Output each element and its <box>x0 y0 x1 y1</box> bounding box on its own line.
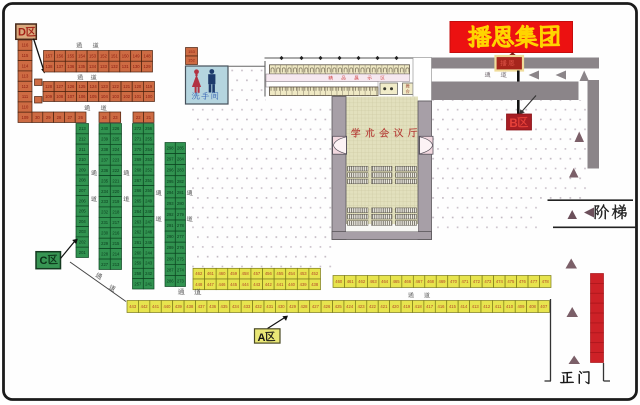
svg-text:156: 156 <box>56 53 64 58</box>
svg-text:448: 448 <box>195 282 203 287</box>
svg-text:416: 416 <box>438 304 446 309</box>
svg-text:413: 413 <box>472 304 480 309</box>
svg-text:439: 439 <box>175 304 183 309</box>
svg-text:275: 275 <box>177 256 185 261</box>
svg-text:105: 105 <box>90 94 98 99</box>
svg-text:447: 447 <box>207 282 215 287</box>
svg-text:418: 418 <box>415 304 423 309</box>
svg-text:229: 229 <box>101 241 109 246</box>
svg-text:408: 408 <box>529 304 537 309</box>
svg-text:270: 270 <box>134 147 142 152</box>
svg-text:443: 443 <box>129 304 137 309</box>
svg-text:109: 109 <box>22 115 30 120</box>
svg-text:274: 274 <box>177 267 185 272</box>
svg-text:273: 273 <box>177 278 185 283</box>
svg-text:262: 262 <box>134 230 142 235</box>
svg-text:231: 231 <box>101 220 109 225</box>
svg-text:295: 295 <box>167 179 175 184</box>
svg-text:238: 238 <box>101 147 109 152</box>
svg-text:A: A <box>258 332 266 344</box>
svg-text:433: 433 <box>243 304 251 309</box>
svg-text:471: 471 <box>461 279 469 284</box>
svg-text:228: 228 <box>101 251 109 256</box>
svg-text:152: 152 <box>100 53 108 58</box>
svg-text:443: 443 <box>253 282 261 287</box>
svg-text:121: 121 <box>123 84 131 89</box>
svg-text:202: 202 <box>79 240 87 245</box>
svg-text:106: 106 <box>79 94 87 99</box>
svg-text:438: 438 <box>186 304 194 309</box>
svg-text:276: 276 <box>177 245 185 250</box>
svg-text:114: 114 <box>22 63 29 68</box>
svg-text:282: 282 <box>177 179 185 184</box>
svg-text:213: 213 <box>112 262 120 267</box>
svg-text:462: 462 <box>358 279 366 284</box>
svg-text:257: 257 <box>134 281 142 286</box>
svg-text:298: 298 <box>167 146 175 151</box>
svg-text:441: 441 <box>276 282 284 287</box>
svg-text:407: 407 <box>540 304 548 309</box>
svg-text:235: 235 <box>101 178 109 183</box>
svg-text:462: 462 <box>195 271 203 276</box>
svg-text:466: 466 <box>404 279 412 284</box>
svg-text:426: 426 <box>323 304 331 309</box>
svg-text:115: 115 <box>22 53 29 58</box>
svg-text:209: 209 <box>79 167 87 172</box>
svg-text:133: 133 <box>100 64 108 69</box>
svg-text:287: 287 <box>167 267 175 272</box>
svg-text:473: 473 <box>484 279 492 284</box>
svg-text:263: 263 <box>134 219 142 224</box>
svg-text:154: 154 <box>78 53 86 58</box>
svg-text:155: 155 <box>67 53 75 58</box>
svg-text:233: 233 <box>101 199 109 204</box>
svg-text:437: 437 <box>198 304 206 309</box>
svg-text:278: 278 <box>177 223 185 228</box>
svg-text:293: 293 <box>167 201 175 206</box>
svg-text:288: 288 <box>167 256 175 261</box>
svg-text:148: 148 <box>144 53 152 58</box>
svg-text:247: 247 <box>145 219 153 224</box>
svg-text:412: 412 <box>483 304 491 309</box>
svg-text:261: 261 <box>134 240 142 245</box>
svg-text:269: 269 <box>134 157 142 162</box>
svg-text:128: 128 <box>45 84 53 89</box>
svg-text:440: 440 <box>288 282 296 287</box>
svg-text:422: 422 <box>369 304 377 309</box>
svg-text:113: 113 <box>22 74 29 79</box>
svg-text:250: 250 <box>145 188 153 193</box>
svg-text:430: 430 <box>278 304 286 309</box>
svg-text:134: 134 <box>89 64 97 69</box>
svg-text:445: 445 <box>230 282 238 287</box>
svg-text:23: 23 <box>113 115 118 120</box>
svg-text:212: 212 <box>79 136 87 141</box>
svg-text:431: 431 <box>266 304 274 309</box>
svg-text:428: 428 <box>300 304 308 309</box>
svg-text:280: 280 <box>177 201 185 206</box>
svg-text:436: 436 <box>209 304 217 309</box>
svg-text:465: 465 <box>393 279 401 284</box>
svg-text:251: 251 <box>145 178 153 183</box>
svg-text:210: 210 <box>79 157 87 162</box>
svg-text:24: 24 <box>102 115 107 120</box>
svg-text:425: 425 <box>335 304 343 309</box>
svg-text:419: 419 <box>403 304 411 309</box>
svg-text:460: 460 <box>218 271 226 276</box>
svg-text:245: 245 <box>145 240 153 245</box>
svg-text:285: 285 <box>177 146 185 151</box>
svg-text:221: 221 <box>112 178 120 183</box>
svg-text:467: 467 <box>416 279 424 284</box>
svg-text:452: 452 <box>311 271 319 276</box>
svg-text:127: 127 <box>56 84 64 89</box>
svg-text:22: 22 <box>136 115 141 120</box>
svg-text:204: 204 <box>79 219 87 224</box>
svg-text:239: 239 <box>101 137 109 142</box>
svg-text:271: 271 <box>134 137 142 142</box>
svg-text:283: 283 <box>177 168 185 173</box>
svg-text:216: 216 <box>112 231 120 236</box>
svg-text:441: 441 <box>152 304 160 309</box>
svg-text:272: 272 <box>134 126 142 131</box>
svg-text:227: 227 <box>101 262 109 267</box>
svg-text:26: 26 <box>78 115 83 120</box>
svg-text:427: 427 <box>312 304 320 309</box>
svg-text:103: 103 <box>112 94 120 99</box>
svg-text:258: 258 <box>134 271 142 276</box>
svg-text:477: 477 <box>530 279 538 284</box>
svg-text:136: 136 <box>67 64 75 69</box>
svg-text:292: 292 <box>167 212 175 217</box>
svg-text:111: 111 <box>22 94 29 99</box>
svg-text:120: 120 <box>134 84 142 89</box>
svg-text:232: 232 <box>101 210 109 215</box>
svg-text:294: 294 <box>167 190 175 195</box>
svg-text:211: 211 <box>79 147 86 152</box>
svg-text:151: 151 <box>111 53 119 58</box>
svg-text:434: 434 <box>232 304 240 309</box>
svg-text:290: 290 <box>167 234 175 239</box>
svg-text:424: 424 <box>346 304 354 309</box>
svg-text:442: 442 <box>265 282 273 287</box>
svg-text:135: 135 <box>78 64 86 69</box>
svg-text:446: 446 <box>218 282 226 287</box>
svg-text:109: 109 <box>45 94 53 99</box>
svg-text:476: 476 <box>519 279 527 284</box>
svg-text:208: 208 <box>79 178 87 183</box>
svg-text:234: 234 <box>101 189 109 194</box>
svg-text:116: 116 <box>22 43 29 48</box>
svg-text:444: 444 <box>242 282 250 287</box>
svg-text:458: 458 <box>242 271 250 276</box>
svg-text:291: 291 <box>167 223 175 228</box>
svg-text:410: 410 <box>506 304 514 309</box>
svg-text:478: 478 <box>542 279 550 284</box>
svg-text:249: 249 <box>145 199 153 204</box>
svg-text:438: 438 <box>311 282 319 287</box>
svg-text:264: 264 <box>134 209 142 214</box>
svg-text:472: 472 <box>473 279 481 284</box>
svg-text:254: 254 <box>145 147 153 152</box>
svg-text:152: 152 <box>188 58 195 63</box>
svg-text:297: 297 <box>167 157 175 162</box>
svg-text:468: 468 <box>427 279 435 284</box>
svg-text:415: 415 <box>449 304 457 309</box>
svg-text:463: 463 <box>370 279 378 284</box>
svg-text:266: 266 <box>134 188 142 193</box>
svg-text:260: 260 <box>134 250 142 255</box>
svg-text:461: 461 <box>347 279 355 284</box>
svg-text:286: 286 <box>167 278 175 283</box>
svg-text:289: 289 <box>167 245 175 250</box>
svg-text:206: 206 <box>79 198 87 203</box>
svg-text:439: 439 <box>300 282 308 287</box>
svg-text:240: 240 <box>101 126 109 131</box>
svg-text:205: 205 <box>79 209 87 214</box>
svg-text:125: 125 <box>79 84 87 89</box>
svg-text:126: 126 <box>67 84 75 89</box>
svg-text:464: 464 <box>381 279 389 284</box>
svg-text:429: 429 <box>289 304 297 309</box>
svg-text:442: 442 <box>141 304 149 309</box>
svg-text:207: 207 <box>79 188 87 193</box>
svg-text:137: 137 <box>56 64 64 69</box>
svg-text:213: 213 <box>79 126 87 131</box>
svg-text:256: 256 <box>145 126 153 131</box>
svg-text:223: 223 <box>112 158 120 163</box>
svg-text:267: 267 <box>134 178 142 183</box>
svg-text:255: 255 <box>145 137 153 142</box>
svg-text:432: 432 <box>255 304 263 309</box>
svg-text:131: 131 <box>122 64 130 69</box>
svg-text:102: 102 <box>123 94 131 99</box>
svg-text:279: 279 <box>177 212 185 217</box>
svg-text:100: 100 <box>145 94 153 99</box>
svg-text:453: 453 <box>300 271 308 276</box>
svg-text:124: 124 <box>90 84 98 89</box>
svg-text:107: 107 <box>67 94 75 99</box>
svg-text:215: 215 <box>112 241 120 246</box>
svg-text:244: 244 <box>145 250 153 255</box>
svg-text:474: 474 <box>496 279 504 284</box>
svg-text:222: 222 <box>112 168 120 173</box>
svg-text:248: 248 <box>145 209 153 214</box>
svg-text:461: 461 <box>207 271 215 276</box>
svg-text:132: 132 <box>111 64 119 69</box>
svg-text:D: D <box>18 27 26 39</box>
svg-text:421: 421 <box>380 304 388 309</box>
svg-text:226: 226 <box>112 126 120 131</box>
svg-text:218: 218 <box>112 210 120 215</box>
svg-text:150: 150 <box>122 53 130 58</box>
svg-text:29: 29 <box>46 115 51 120</box>
svg-text:457: 457 <box>253 271 261 276</box>
svg-text:252: 252 <box>145 168 153 173</box>
svg-text:455: 455 <box>276 271 284 276</box>
svg-text:296: 296 <box>167 168 175 173</box>
svg-text:454: 454 <box>288 271 296 276</box>
svg-text:268: 268 <box>134 168 142 173</box>
svg-text:411: 411 <box>495 304 502 309</box>
svg-text:224: 224 <box>112 147 120 152</box>
svg-text:C: C <box>40 255 48 267</box>
svg-text:110: 110 <box>22 105 29 110</box>
svg-text:417: 417 <box>426 304 434 309</box>
svg-text:149: 149 <box>133 53 141 58</box>
svg-text:420: 420 <box>392 304 400 309</box>
svg-text:459: 459 <box>230 271 238 276</box>
svg-text:130: 130 <box>133 64 141 69</box>
svg-text:219: 219 <box>112 199 120 204</box>
svg-text:237: 237 <box>101 158 109 163</box>
svg-text:475: 475 <box>507 279 515 284</box>
svg-text:440: 440 <box>163 304 171 309</box>
svg-text:123: 123 <box>101 84 109 89</box>
svg-text:28: 28 <box>57 115 62 120</box>
svg-text:108: 108 <box>56 94 64 99</box>
svg-text:456: 456 <box>265 271 273 276</box>
svg-text:153: 153 <box>89 53 97 58</box>
svg-text:129: 129 <box>144 64 152 69</box>
svg-text:138: 138 <box>45 64 53 69</box>
svg-text:214: 214 <box>112 251 120 256</box>
svg-text:30: 30 <box>35 115 40 120</box>
svg-text:243: 243 <box>145 261 153 266</box>
svg-text:265: 265 <box>134 199 142 204</box>
svg-text:119: 119 <box>146 84 153 89</box>
svg-text:435: 435 <box>221 304 229 309</box>
svg-text:236: 236 <box>101 168 109 173</box>
svg-text:284: 284 <box>177 157 185 162</box>
svg-text:281: 281 <box>177 190 185 195</box>
svg-text:225: 225 <box>112 137 120 142</box>
svg-text:409: 409 <box>517 304 525 309</box>
svg-text:157: 157 <box>45 53 53 58</box>
svg-text:230: 230 <box>101 231 109 236</box>
svg-text:423: 423 <box>358 304 366 309</box>
svg-text:27: 27 <box>67 115 72 120</box>
svg-text:259: 259 <box>134 261 142 266</box>
svg-text:104: 104 <box>101 94 109 99</box>
svg-text:B: B <box>509 118 517 130</box>
svg-text:21: 21 <box>146 115 151 120</box>
svg-text:246: 246 <box>145 230 153 235</box>
svg-text:277: 277 <box>177 234 185 239</box>
svg-text:241: 241 <box>145 281 153 286</box>
svg-text:253: 253 <box>145 157 153 162</box>
svg-text:469: 469 <box>439 279 447 284</box>
svg-text:101: 101 <box>134 94 142 99</box>
svg-text:220: 220 <box>112 189 120 194</box>
svg-text:217: 217 <box>112 220 120 225</box>
svg-text:460: 460 <box>335 279 343 284</box>
svg-text:203: 203 <box>79 229 87 234</box>
svg-text:122: 122 <box>112 84 120 89</box>
svg-text:414: 414 <box>460 304 468 309</box>
svg-text:153: 153 <box>188 49 195 54</box>
svg-text:242: 242 <box>145 271 153 276</box>
svg-text:470: 470 <box>450 279 458 284</box>
svg-text:201: 201 <box>79 250 87 255</box>
svg-text:112: 112 <box>22 84 29 89</box>
